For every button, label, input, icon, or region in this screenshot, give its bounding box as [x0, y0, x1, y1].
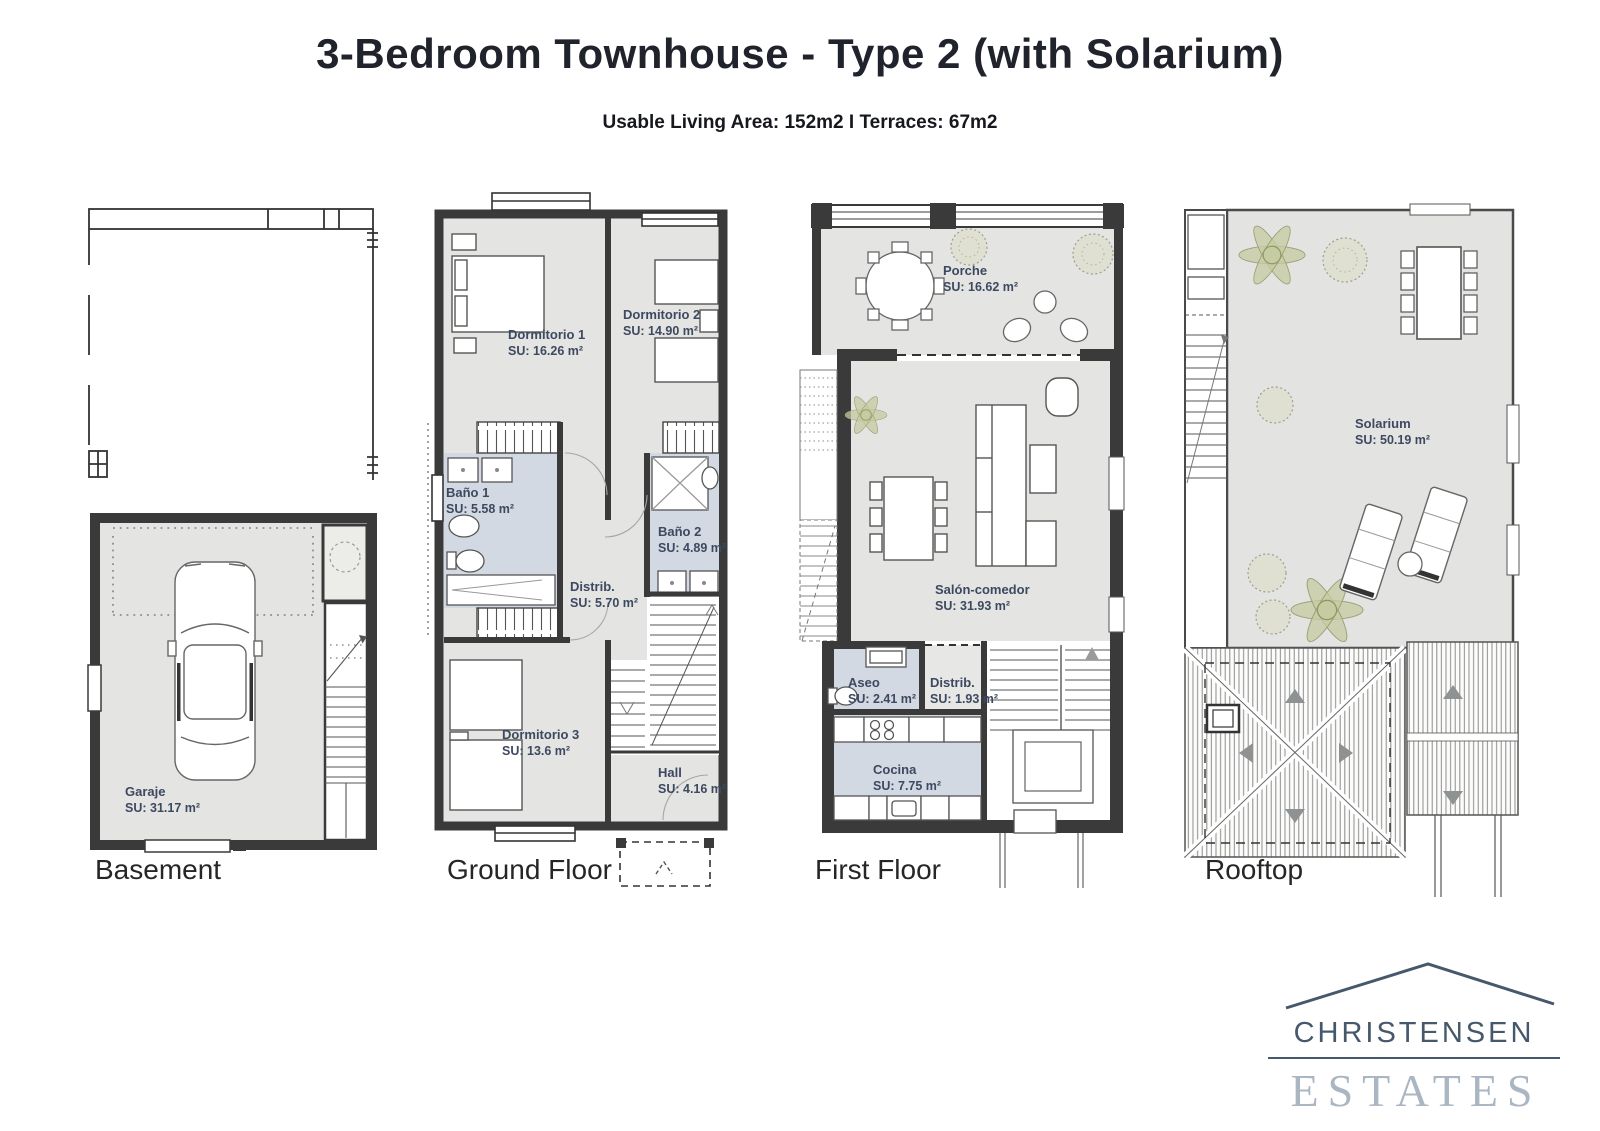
armchair-icon: [1046, 378, 1078, 416]
exterior-steps: [1000, 833, 1083, 888]
terrace-door: [1014, 810, 1056, 833]
floor-name-basement: Basement: [95, 854, 221, 886]
garage-door: [145, 840, 230, 852]
room-label-aseo: Aseo SU: 2.41 m²: [848, 674, 916, 708]
stairwell-void: [800, 370, 837, 641]
round-dining-table-icon: [856, 242, 944, 330]
floor-name-first: First Floor: [815, 854, 941, 886]
room-label-bano-1: Baño 1 SU: 5.58 m²: [446, 484, 514, 518]
rooftop-plan: Solarium SU: 50.19 m² Rooftop: [1155, 185, 1530, 905]
brand-logo: CHRISTENSEN ESTATES: [1268, 956, 1560, 1117]
dining-table-icon: [870, 477, 947, 560]
room-label-cocina: Cocina SU: 7.75 m²: [873, 761, 941, 795]
logo-wordmark-secondary: ESTATES: [1272, 1064, 1560, 1117]
rooftop-stair-tower: [1185, 210, 1229, 648]
garage-window: [88, 665, 101, 711]
room-label-dormitorio-3: Dormitorio 3 SU: 13.6 m²: [502, 726, 579, 760]
room-label-distrib-ff: Distrib. SU: 1.93 m²: [930, 674, 998, 708]
basement-drawing: [85, 195, 400, 860]
garage-door-post: [233, 841, 246, 851]
pitched-roof: [1407, 642, 1518, 897]
rooftop-drawing: [1155, 185, 1530, 905]
floor-plan-sheet: 3-Bedroom Townhouse - Type 2 (with Solar…: [0, 0, 1600, 1131]
entrance-porch: [616, 838, 714, 886]
floor-name-rooftop: Rooftop: [1205, 854, 1303, 886]
basement-patio-walls: [89, 209, 378, 480]
page-subtitle: Usable Living Area: 152m2 I Terraces: 67…: [0, 112, 1600, 134]
logo-roof-icon: [1268, 956, 1560, 1012]
room-label-hall: Hall SU: 4.16 m²: [658, 764, 726, 798]
room-label-bano-2: Baño 2 SU: 4.89 m²: [658, 523, 726, 557]
page-title: 3-Bedroom Townhouse - Type 2 (with Solar…: [0, 30, 1600, 78]
car-icon: [168, 562, 262, 780]
room-label-salon-comedor: Salón-comedor SU: 31.93 m²: [935, 581, 1030, 615]
room-label-porche: Porche SU: 16.62 m²: [943, 262, 1018, 296]
room-label-solarium: Solarium SU: 50.19 m²: [1355, 415, 1430, 449]
ground-floor-plan: Dormitorio 1 SU: 16.26 m² Dormitorio 2 S…: [420, 190, 742, 900]
room-label-distrib: Distrib. SU: 5.70 m²: [570, 578, 638, 612]
first-floor-plan: Porche SU: 16.62 m² Salón-comedor SU: 31…: [780, 190, 1130, 900]
first-floor-stairs: [987, 641, 1110, 820]
room-label-garaje: Garaje SU: 31.17 m²: [125, 783, 200, 817]
logo-wordmark-primary: CHRISTENSEN: [1268, 1017, 1560, 1059]
basement-plan: Garaje SU: 31.17 m² Basement: [85, 195, 400, 895]
utility-room: [323, 525, 367, 601]
floor-name-ground: Ground Floor: [447, 854, 612, 886]
room-label-dormitorio-2: Dormitorio 2 SU: 14.90 m²: [623, 306, 700, 340]
room-label-dormitorio-1: Dormitorio 1 SU: 16.26 m²: [508, 326, 585, 360]
solarium-top-window: [1410, 204, 1470, 215]
hip-roof: [1185, 648, 1405, 857]
